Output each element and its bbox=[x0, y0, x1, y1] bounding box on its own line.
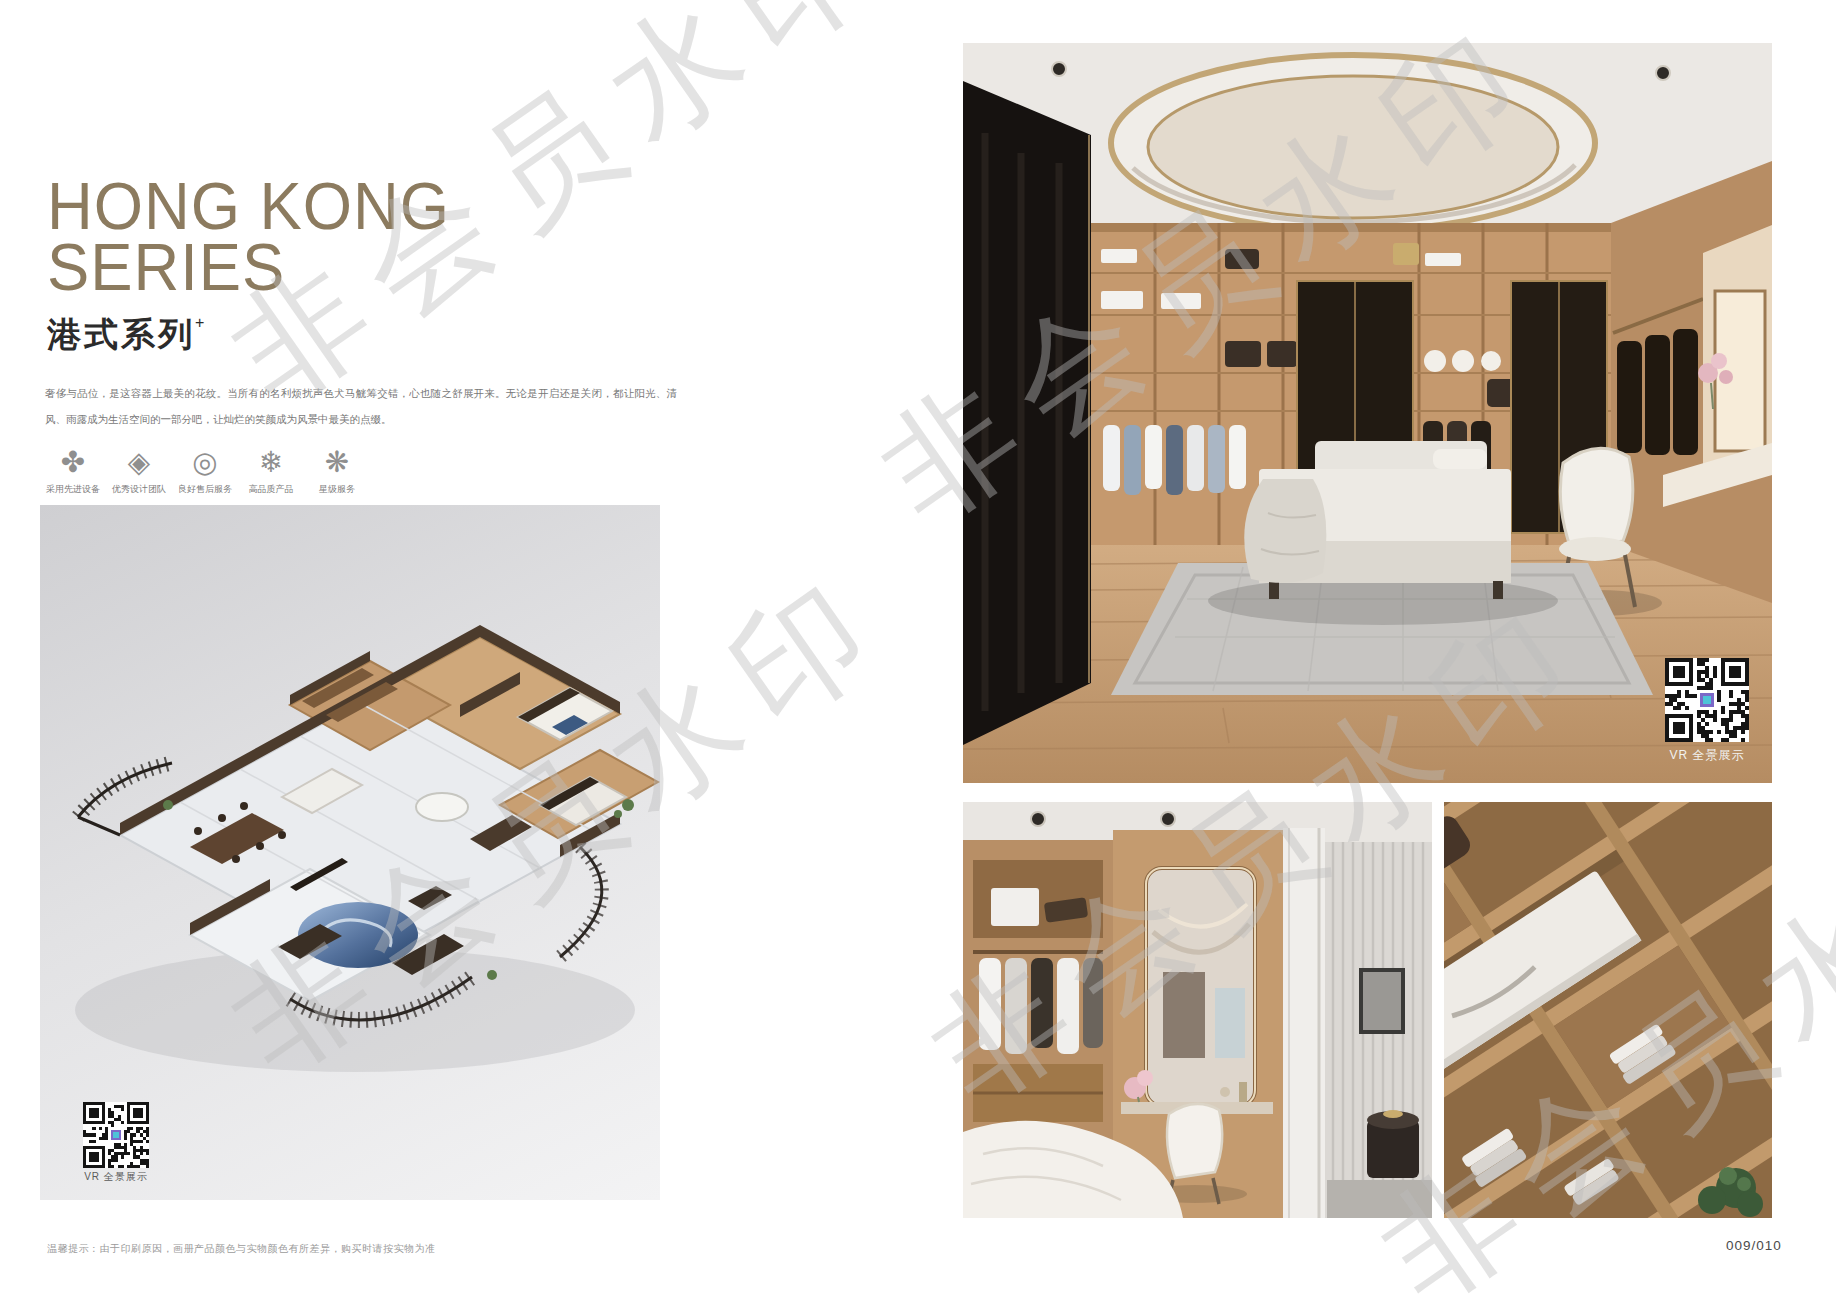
series-description: 奢侈与品位，是这容器上最美的花纹。当所有的名利烦扰声色犬马觥筹交错，心也随之舒展… bbox=[45, 380, 677, 432]
dressing-area-illustration bbox=[963, 802, 1432, 1218]
vr-qr-frame bbox=[1665, 658, 1749, 742]
feature-label: 优秀设计团队 bbox=[112, 483, 166, 496]
title-line-1: HONG KONG bbox=[47, 176, 450, 237]
vr-qr-label: VR 全景展示 bbox=[73, 1170, 159, 1184]
floorplan-illustration bbox=[40, 505, 660, 1200]
floorplan-figure: VR 全景展示 bbox=[40, 505, 660, 1200]
series-title-chinese: 港式系列+ bbox=[47, 312, 204, 358]
feature-item-quality: ❄ 高品质产品 bbox=[238, 446, 304, 496]
print-disclaimer: 温馨提示：由于印刷原因，画册产品颜色与实物颜色有所差异，购买时请按实物为准 bbox=[47, 1242, 436, 1256]
vr-qr-code-main bbox=[1670, 663, 1744, 737]
snowflake-icon: ❄ bbox=[259, 446, 283, 478]
vr-qr-code-floorplan bbox=[83, 1102, 149, 1168]
feature-label: 星级服务 bbox=[319, 483, 355, 496]
feature-item-star-service: ❋ 星级服务 bbox=[304, 446, 370, 496]
title-line-2: SERIES bbox=[47, 237, 450, 298]
feature-label: 采用先进设备 bbox=[46, 483, 100, 496]
feature-item-equipment: ✤ 采用先进设备 bbox=[40, 446, 106, 496]
ornament-diamond-icon: ◈ bbox=[128, 446, 150, 478]
star-ornament-icon: ❋ bbox=[325, 446, 349, 478]
vr-qr-label-main: VR 全景展示 bbox=[1657, 747, 1757, 764]
shelf-closeup-illustration bbox=[1444, 802, 1772, 1218]
feature-list: ✤ 采用先进设备 ◈ 优秀设计团队 ◎ 良好售后服务 ❄ 高品质产品 ❋ 星级服… bbox=[40, 446, 370, 496]
feature-label: 良好售后服务 bbox=[178, 483, 232, 496]
dressing-area-photo bbox=[963, 802, 1432, 1218]
plus-superscript: + bbox=[195, 314, 204, 331]
ring-icon: ◎ bbox=[192, 446, 217, 478]
shelf-closeup-photo bbox=[1444, 802, 1772, 1218]
ornament-flower-icon: ✤ bbox=[61, 446, 85, 478]
feature-item-after-sales: ◎ 良好售后服务 bbox=[172, 446, 238, 496]
feature-item-design-team: ◈ 优秀设计团队 bbox=[106, 446, 172, 496]
feature-label: 高品质产品 bbox=[249, 483, 294, 496]
catalog-spread: HONG KONG SERIES 港式系列+ 奢侈与品位，是这容器上最美的花纹。… bbox=[0, 0, 1836, 1307]
walk-in-closet-illustration bbox=[963, 43, 1772, 783]
walk-in-closet-photo: VR 全景展示 bbox=[963, 43, 1772, 783]
page-number: 009/010 bbox=[1726, 1238, 1782, 1253]
series-title-english: HONG KONG SERIES bbox=[47, 176, 467, 297]
